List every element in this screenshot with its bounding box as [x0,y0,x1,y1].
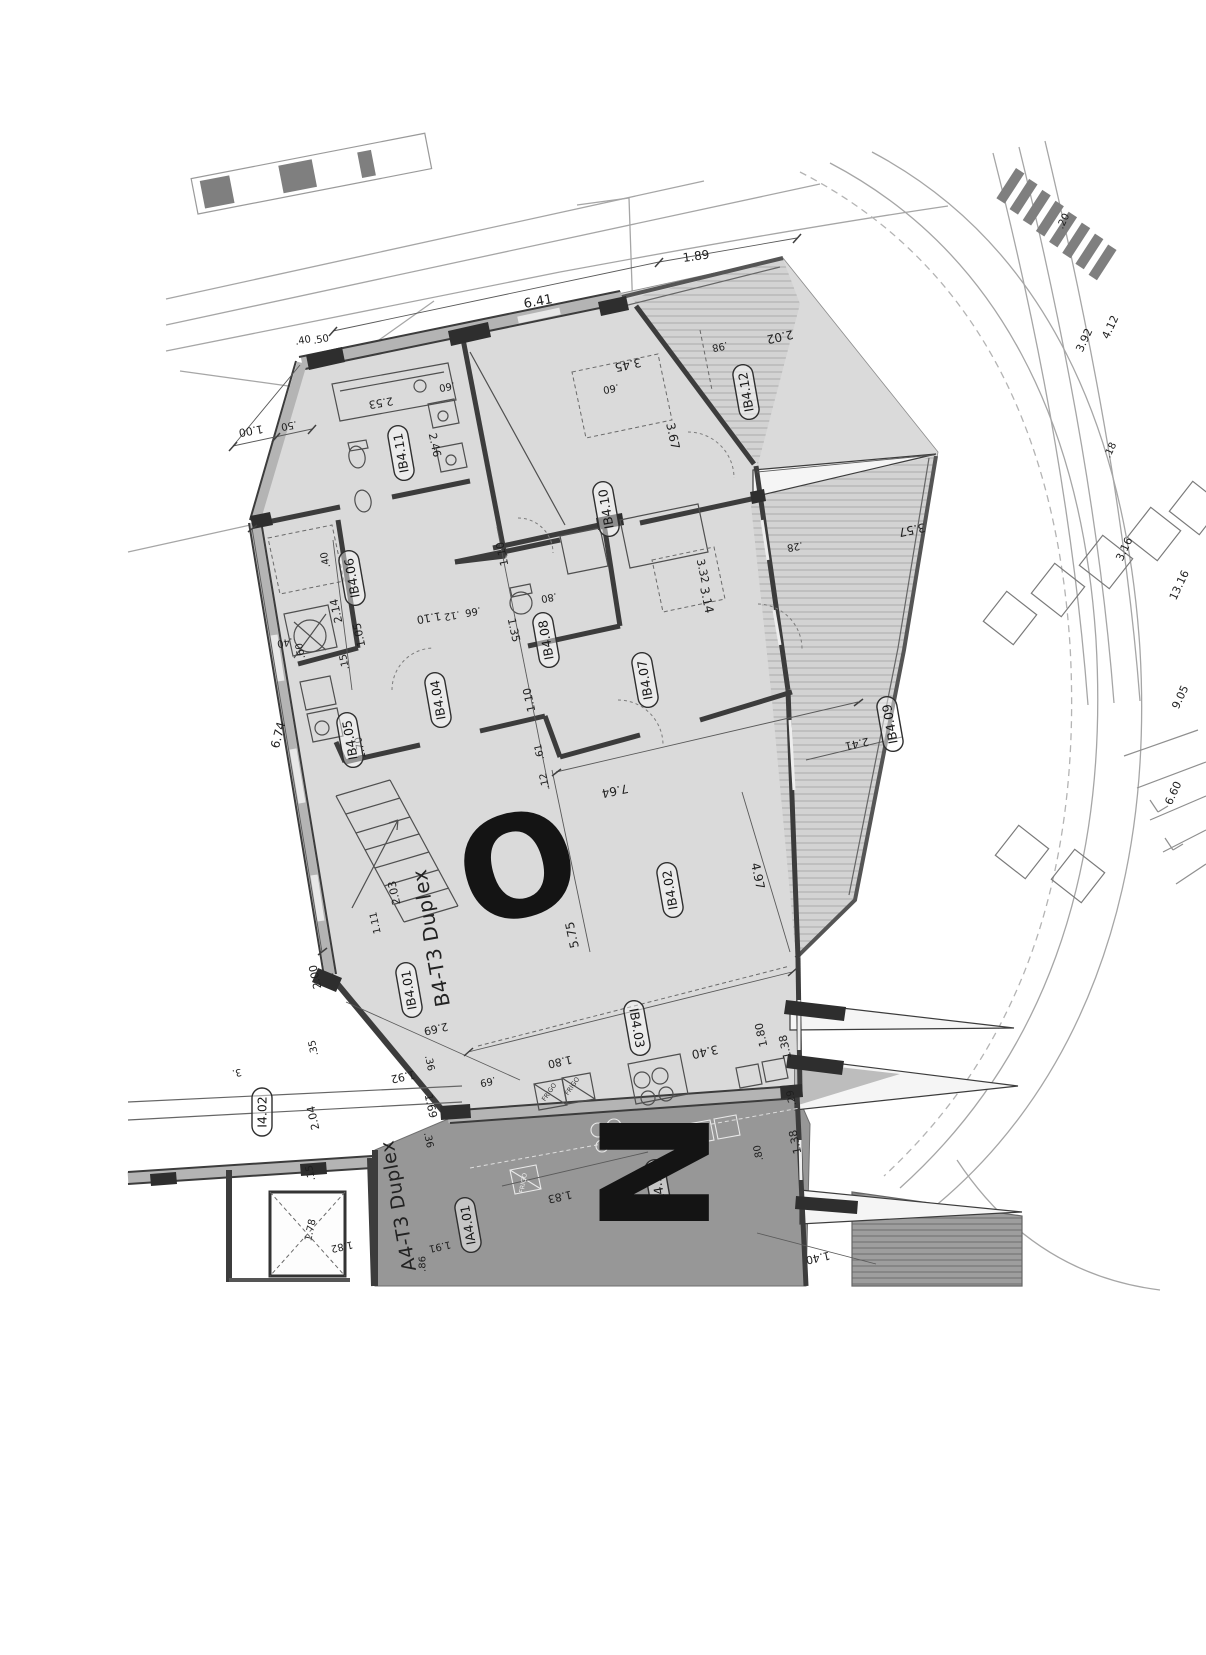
scanned-floor-plan-page: { "colors": { "paper": "#ffffff", "floor… [0,0,1206,1655]
dimension-label: .35 [307,1039,321,1057]
site-dimension-label: 13.16 [1167,568,1192,602]
dimension-label: 3. [231,1066,243,1079]
dimension-label: 1.92 [390,1068,417,1086]
dimension-label: 1.00 [238,422,264,439]
site-dimension-label: 4.12 [1099,313,1121,341]
crosswalk-top-left [191,133,431,214]
site-dimension-label: 6.60 [1162,779,1184,807]
dimension-label: 2.00 [306,964,324,991]
paver-squares [983,481,1206,902]
balcony-divider-blades [790,1002,1022,1224]
dimension-label: 1.89 [682,247,710,265]
dimension-label: 1.40 [805,1249,832,1267]
site-dimension-label: .18 [1103,441,1120,460]
plan-letter: N [564,1109,738,1235]
site-dimension-label: 3.92 [1073,326,1095,354]
dimension-label: 2.04 [304,1105,322,1132]
floor-plan-canvas: 6.411.89.40.501.00.502.532.46.60.603.453… [0,0,1206,1655]
dimension-label: .40 [294,334,312,348]
dimension-label: .50 [312,333,330,347]
site-dimension-label: 9.05 [1169,683,1191,711]
room-label: I4.02 [254,1096,269,1128]
